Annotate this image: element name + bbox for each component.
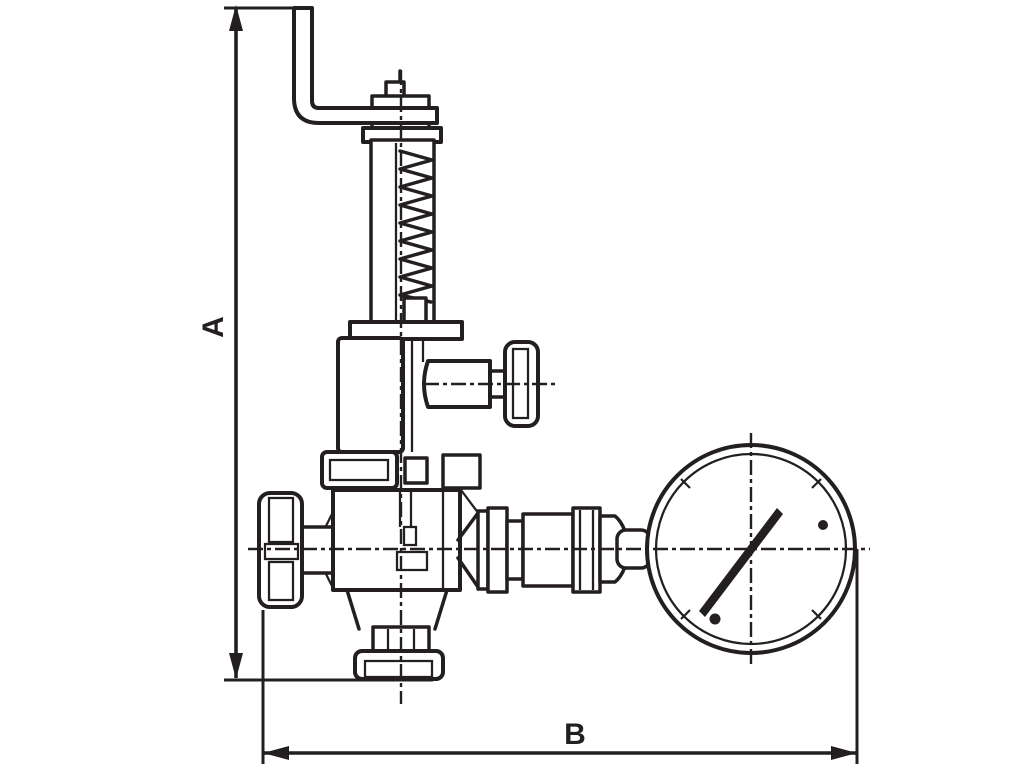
outlet-funnel-left [347, 590, 359, 629]
seat-upper [404, 527, 416, 545]
bonnet-shell [338, 338, 403, 452]
dimension-label-a: A [197, 316, 230, 338]
arrowhead-a-bottom [229, 653, 243, 679]
bonnet-flange-inner [330, 460, 388, 480]
handwheel-spoke-top [269, 498, 293, 542]
handwheel-hub [265, 544, 298, 559]
valve-drawing-canvas: A B [0, 0, 1024, 766]
handwheel-spoke-bottom [269, 562, 293, 600]
outlet-funnel-right [435, 590, 447, 629]
gauge-dial-dot-min [710, 614, 721, 625]
technical-drawing-safety-valve: A B [0, 0, 1024, 766]
packing-gland [405, 458, 427, 483]
arrowhead-b-right [831, 746, 857, 760]
outlet-flange-inner [365, 661, 432, 677]
dimension-label-b: B [564, 718, 586, 751]
arrowhead-b-left [263, 746, 289, 760]
outlet-elbow-block [443, 455, 480, 488]
elbow-diagonal [461, 490, 479, 514]
gauge-dial-dot-max [818, 520, 828, 530]
body-block [333, 490, 460, 590]
valve-body [302, 490, 478, 590]
outlet [347, 590, 447, 679]
spring-housing [350, 140, 462, 339]
